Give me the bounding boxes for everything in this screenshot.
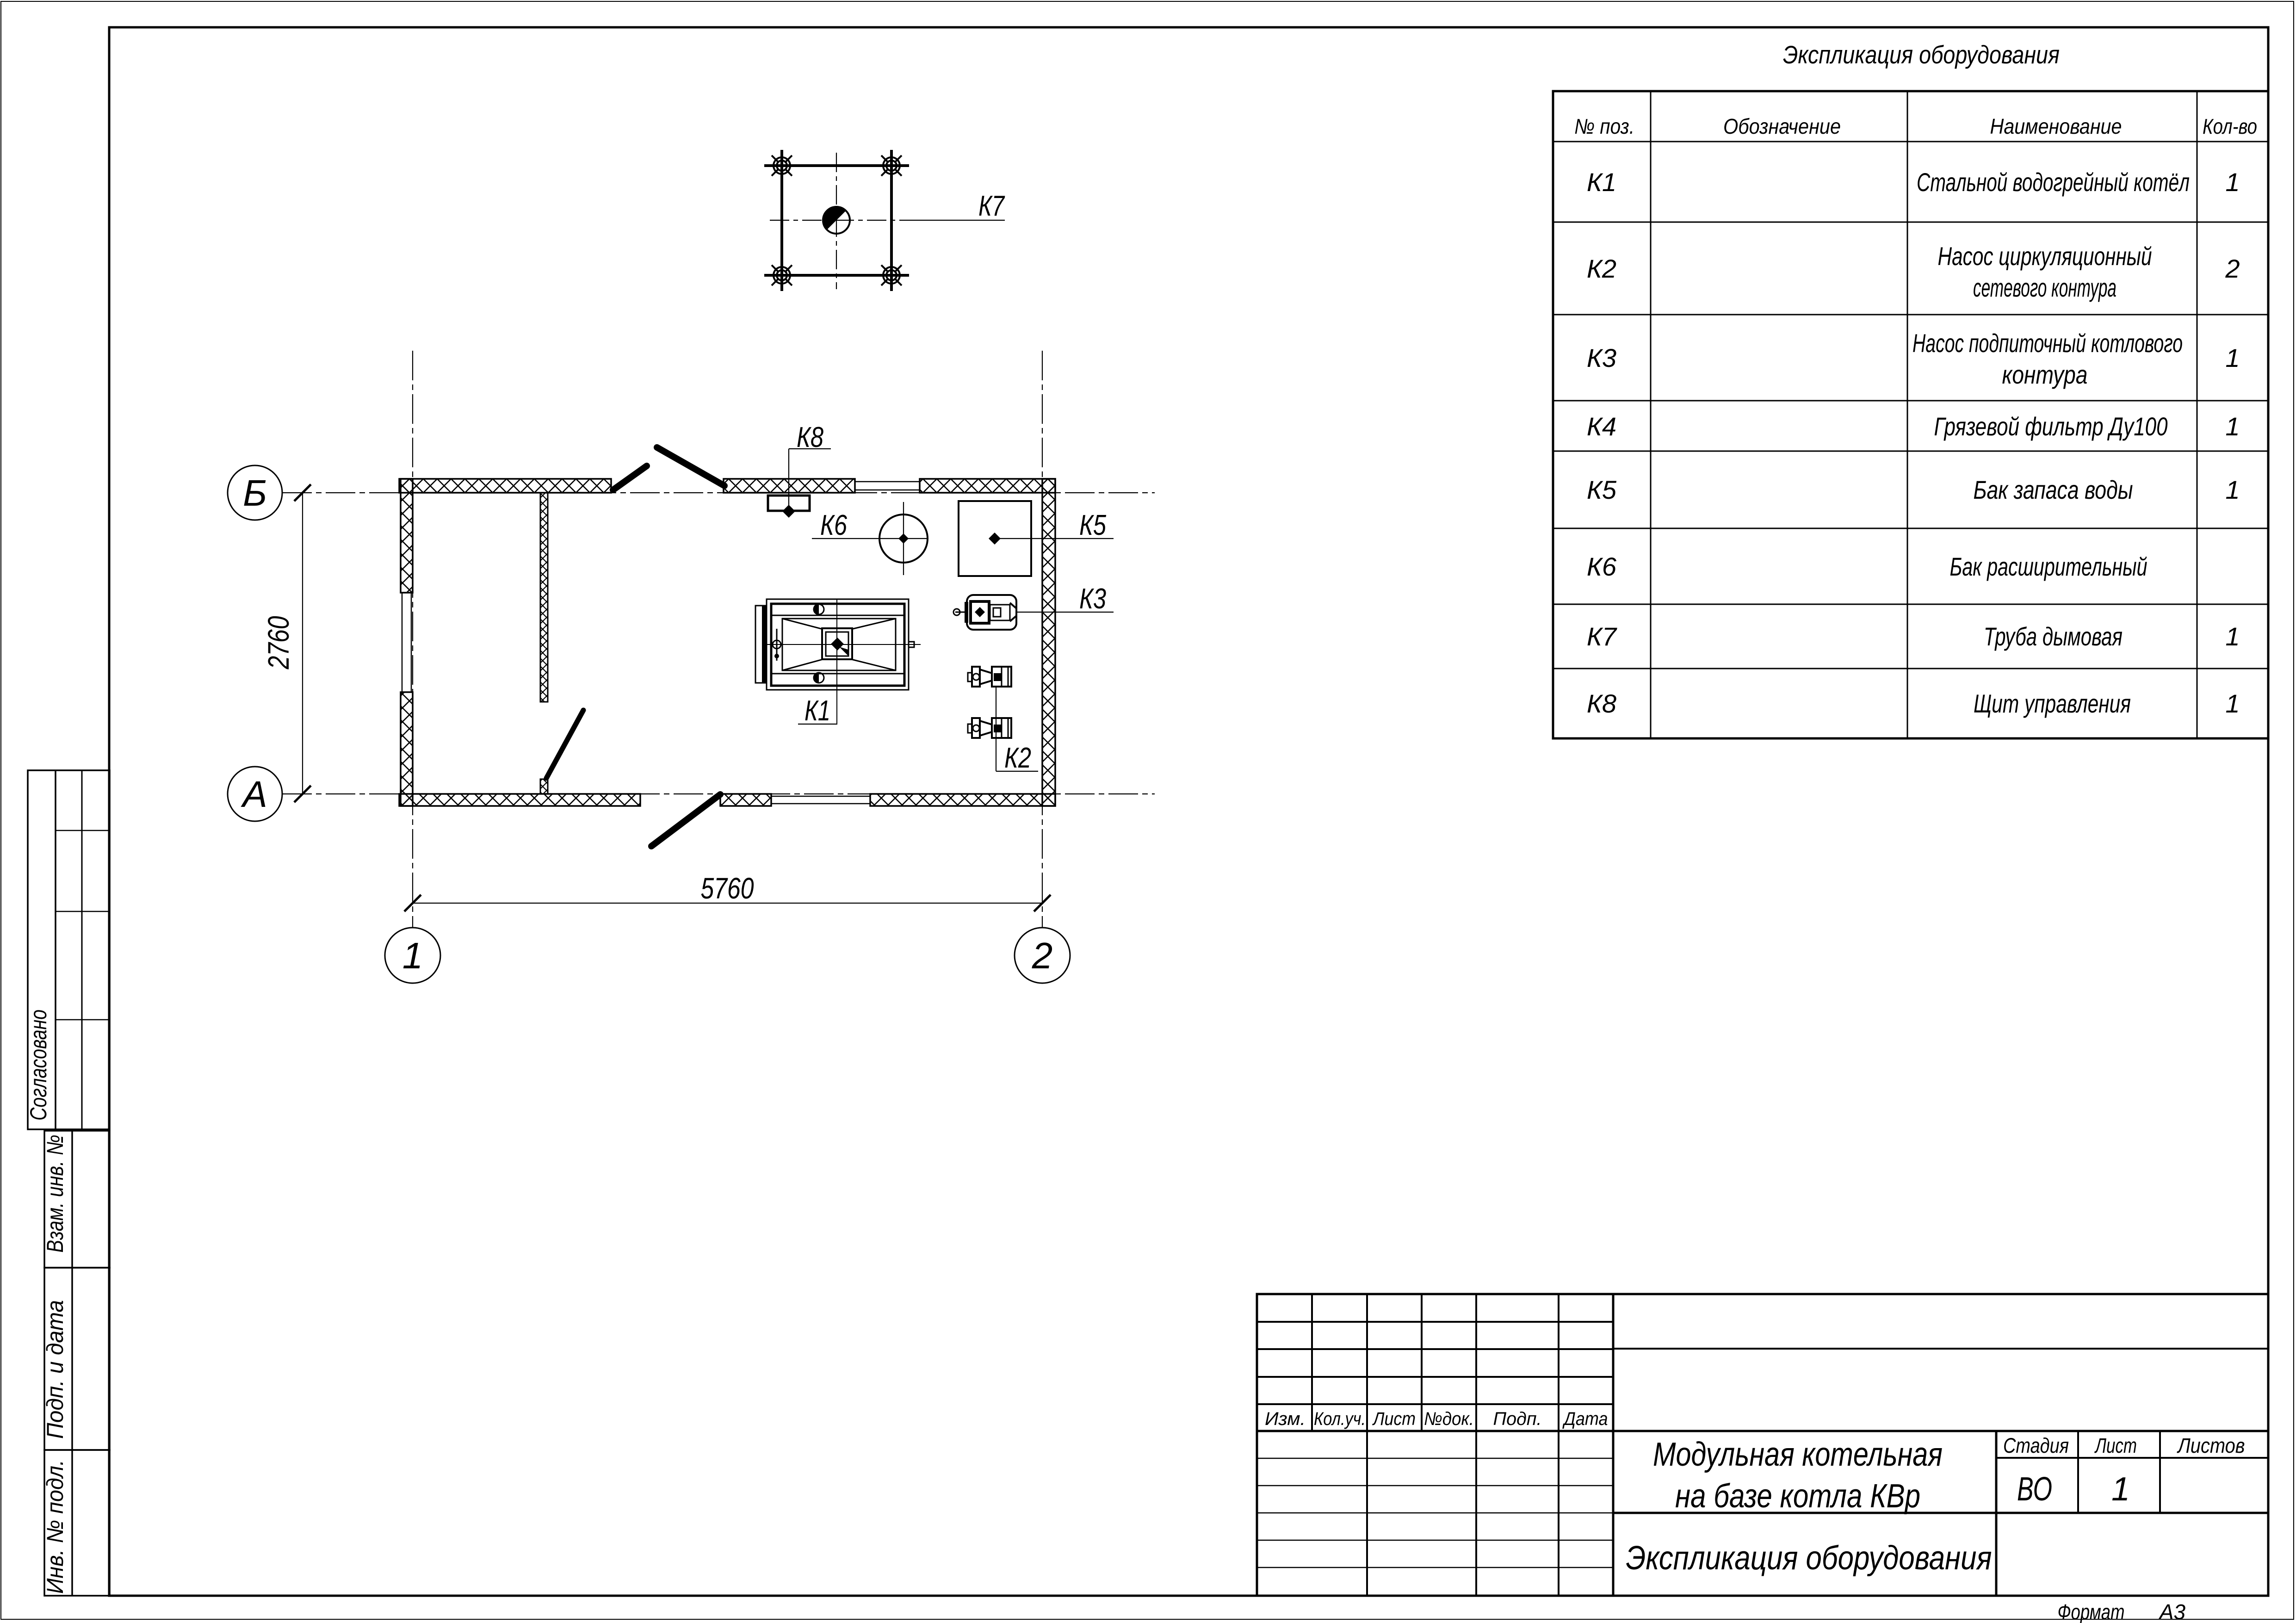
svg-text:К4: К4 [1587,412,1616,441]
svg-text:Бак запаса воды: Бак запаса воды [1974,475,2133,504]
svg-text:сетевого контура: сетевого контура [1973,273,2117,302]
svg-text:2: 2 [1032,935,1053,976]
svg-text:Согласовано: Согласовано [25,1010,51,1121]
svg-text:1: 1 [2111,1471,2130,1508]
svg-text:К8: К8 [1587,689,1616,718]
svg-text:К1: К1 [1587,167,1616,197]
svg-text:Кол-во: Кол-во [2203,114,2257,138]
svg-text:Насос циркуляционный: Насос циркуляционный [1938,242,2152,271]
svg-text:К5: К5 [1079,509,1106,541]
svg-text:2760: 2760 [262,616,295,669]
svg-text:К3: К3 [1079,583,1106,615]
svg-text:Насос подпиточный котлового: Насос подпиточный котлового [1912,328,2183,358]
svg-text:на базе котла КВр: на базе котла КВр [1675,1478,1920,1515]
svg-text:К7: К7 [978,190,1005,222]
svg-text:1: 1 [2225,689,2240,718]
svg-text:К1: К1 [805,695,830,727]
svg-text:№док.: №док. [1424,1409,1474,1429]
svg-text:К6: К6 [1587,552,1617,581]
svg-text:Наименование: Наименование [1990,114,2122,138]
svg-text:Изм.: Изм. [1265,1409,1306,1429]
svg-text:Инв. № подл.: Инв. № подл. [42,1460,68,1594]
svg-text:1: 1 [402,935,423,976]
svg-text:Подп.: Подп. [1493,1409,1542,1429]
svg-text:1: 1 [2225,412,2240,441]
svg-text:1: 1 [2225,622,2240,651]
svg-text:2: 2 [2225,254,2240,283]
svg-text:Модульная котельная: Модульная котельная [1653,1436,1943,1473]
svg-text:Труба дымовая: Труба дымовая [1984,622,2123,651]
svg-text:Экспликация оборудования: Экспликация оборудования [1626,1540,1992,1577]
svg-text:Лист: Лист [2094,1434,2137,1457]
svg-text:Дата: Дата [1562,1409,1608,1429]
svg-text:К3: К3 [1587,343,1616,372]
svg-text:1: 1 [2225,475,2240,504]
svg-text:№ поз.: № поз. [1574,114,1634,138]
svg-text:Стальной водогрейный котёл: Стальной водогрейный котёл [1917,167,2190,197]
svg-text:Щит управления: Щит управления [1974,689,2131,718]
svg-text:Стадия: Стадия [2003,1434,2069,1457]
svg-text:К2: К2 [1004,742,1031,774]
svg-text:Б: Б [243,472,267,514]
svg-text:К7: К7 [1587,622,1617,651]
svg-text:Формат: Формат [2058,1600,2125,1623]
svg-text:5760: 5760 [701,872,754,905]
svg-text:А3: А3 [2158,1600,2186,1623]
svg-text:1: 1 [2225,167,2240,197]
svg-text:Взам. инв. №: Взам. инв. № [42,1135,68,1253]
svg-text:Кол.уч.: Кол.уч. [1314,1409,1366,1429]
svg-text:Бак расширительный: Бак расширительный [1950,552,2147,581]
svg-text:Экспликация оборудования: Экспликация оборудования [1783,40,2060,69]
svg-text:А: А [241,774,267,815]
svg-text:К8: К8 [797,421,823,453]
svg-text:Подп. и дата: Подп. и дата [42,1300,68,1439]
svg-text:К5: К5 [1587,475,1617,504]
svg-text:контура: контура [2002,360,2088,389]
svg-text:К2: К2 [1587,254,1616,283]
svg-text:ВО: ВО [2017,1471,2052,1508]
svg-text:Лист: Лист [1372,1409,1416,1429]
svg-text:Обозначение: Обозначение [1723,114,1841,138]
svg-text:1: 1 [2225,343,2240,372]
svg-text:Грязевой фильтр Ду100: Грязевой фильтр Ду100 [1934,412,2168,441]
svg-text:К6: К6 [820,509,847,541]
svg-text:Листов: Листов [2177,1434,2245,1457]
